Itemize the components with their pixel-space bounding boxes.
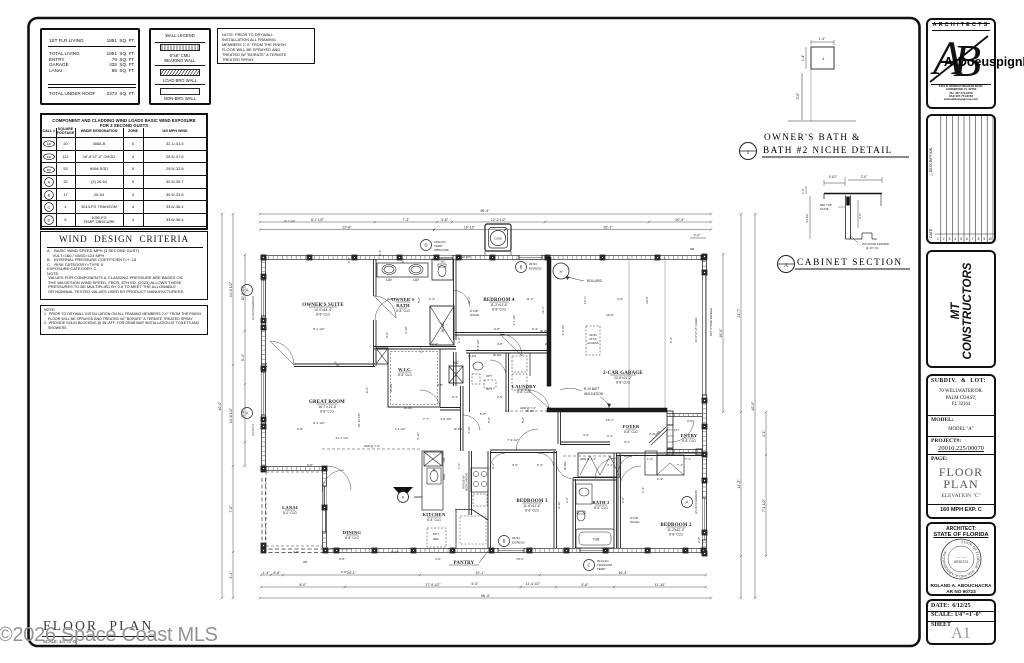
svg-text:8'-8" CLG: 8'-8" CLG xyxy=(682,439,696,443)
svg-text:5'-8": 5'-8" xyxy=(241,409,245,417)
svg-text:PANTRY: PANTRY xyxy=(454,561,475,566)
svg-text:8'-8" CLG: 8'-8" CLG xyxy=(624,430,638,434)
svg-text:7'-7": 7'-7" xyxy=(423,417,429,421)
svg-text:C: C xyxy=(587,563,590,568)
svg-text:10'-0 1/2": 10'-0 1/2" xyxy=(241,285,245,301)
svg-text:12'-1": 12'-1" xyxy=(541,306,545,314)
svg-text:8'-8" CLG: 8'-8" CLG xyxy=(316,313,330,317)
svg-text:21'-7 1/2": 21'-7 1/2" xyxy=(335,436,348,440)
svg-text:16'-4": 16'-4" xyxy=(618,571,628,575)
svg-text:96'-4": 96'-4" xyxy=(480,209,490,213)
svg-text:FOYER: FOYER xyxy=(622,424,640,429)
svg-text:10'-1": 10'-1" xyxy=(475,571,485,575)
svg-text:8'-8" CLG: 8'-8" CLG xyxy=(525,509,539,513)
svg-text:DINING: DINING xyxy=(343,530,362,535)
svg-text:A: A xyxy=(246,411,249,416)
svg-text:1'-4": 1'-4" xyxy=(801,54,805,62)
svg-text:1'-3": 1'-3" xyxy=(657,477,663,481)
svg-text:10'-1": 10'-1" xyxy=(516,557,524,561)
svg-text:D: D xyxy=(47,217,50,222)
svg-text:3'-6": 3'-6" xyxy=(385,332,389,338)
svg-text:4'-8": 4'-8" xyxy=(497,342,503,346)
svg-text:7: 7 xyxy=(972,237,974,241)
svg-text:2'-8": 2'-8" xyxy=(621,497,625,503)
svg-text:LAV: LAV xyxy=(386,278,393,282)
svg-text:3'-1 1/2": 3'-1 1/2" xyxy=(512,315,516,326)
svg-text:NICHE: NICHE xyxy=(470,313,479,317)
svg-text:5'-3": 5'-3" xyxy=(521,417,525,423)
svg-text:(2) 26-54 EGRESS: (2) 26-54 EGRESS xyxy=(694,490,698,514)
svg-text:4'-10": 4'-10" xyxy=(416,432,420,440)
svg-text:5'-8": 5'-8" xyxy=(487,417,491,423)
svg-text:36"x60": 36"x60" xyxy=(441,322,445,333)
svg-text:8'-1 1/2": 8'-1 1/2" xyxy=(313,421,324,425)
svg-text:5 1/2": 5 1/2" xyxy=(829,175,837,179)
svg-text:8'-8" CLG: 8'-8" CLG xyxy=(492,308,506,312)
svg-text:4'-1": 4'-1" xyxy=(762,429,766,437)
svg-text:WC: WC xyxy=(441,260,447,264)
svg-text:3'-10": 3'-10" xyxy=(404,326,408,334)
svg-text:1'-4": 1'-4" xyxy=(262,571,270,575)
svg-text:8'-8" CLG: 8'-8" CLG xyxy=(396,309,410,313)
svg-text:2'-0": 2'-0" xyxy=(694,234,702,238)
svg-text:B: B xyxy=(520,265,523,270)
svg-text:2'-4": 2'-4" xyxy=(429,297,435,301)
svg-text:HB: HB xyxy=(303,560,307,564)
svg-text:2'-8": 2'-8" xyxy=(347,257,351,263)
svg-text:ED: ED xyxy=(47,155,52,159)
svg-text:4'-8": 4'-8" xyxy=(494,327,500,331)
svg-text:28'-1": 28'-1" xyxy=(603,225,613,229)
svg-text:20'-9": 20'-9" xyxy=(606,313,614,317)
svg-text:OPT: OPT xyxy=(433,532,439,536)
svg-text:11'-10": 11'-10" xyxy=(655,583,667,587)
svg-text:ACCESS: ACCESS xyxy=(587,341,599,345)
svg-text:3'-1": 3'-1" xyxy=(607,463,613,467)
svg-text:16'-0"x7'-0" OHGD: 16'-0"x7'-0" OHGD xyxy=(694,317,698,343)
svg-text:16'-1": 16'-1" xyxy=(606,418,614,422)
svg-text:90-154: 90-154 xyxy=(563,461,567,470)
svg-text:12'-1": 12'-1" xyxy=(467,296,471,304)
svg-text:16'-0": 16'-0" xyxy=(645,296,649,304)
svg-text:TUB: TUB xyxy=(593,538,601,542)
svg-text:40'-0": 40'-0" xyxy=(218,401,222,411)
svg-text:2'-6": 2'-6" xyxy=(497,395,503,399)
svg-text:11'-4 1/2": 11'-4 1/2" xyxy=(526,582,542,586)
svg-text:7'-9 1/2": 7'-9 1/2" xyxy=(507,438,518,442)
svg-text:EGRESS: EGRESS xyxy=(529,267,542,271)
svg-text:1'-4": 1'-4" xyxy=(819,37,827,41)
svg-text:A: A xyxy=(47,179,50,184)
svg-text:W.I.C.: W.I.C. xyxy=(398,367,412,372)
svg-text:7'-4 1/2": 7'-4 1/2" xyxy=(394,427,405,431)
svg-text:2'-4": 2'-4" xyxy=(669,337,673,343)
svg-text:STATE OF FLORIDA · ROLAND A. A: STATE OF FLORIDA · ROLAND A. ABOUCHACRA … xyxy=(942,540,980,578)
svg-text:MICRO ABOVE: MICRO ABOVE xyxy=(465,473,469,491)
svg-text:11'-2"x11'-6": 11'-2"x11'-6" xyxy=(490,303,507,307)
svg-text:4'-4": 4'-4" xyxy=(432,342,438,346)
svg-text:2'-0": 2'-0" xyxy=(697,537,701,543)
svg-text:6'-8": 6'-8" xyxy=(307,463,313,467)
svg-text:8: 8 xyxy=(978,237,980,241)
svg-text:OPT: OPT xyxy=(486,374,492,378)
svg-text:10: 10 xyxy=(988,237,992,241)
svg-text:BOLLARD: BOLLARD xyxy=(587,279,603,283)
svg-text:1'-4": 1'-4" xyxy=(229,571,233,579)
svg-text:21'-7": 21'-7" xyxy=(737,308,741,318)
svg-text:20'-9": 20'-9" xyxy=(675,218,685,222)
svg-text:90-154: 90-154 xyxy=(468,354,477,358)
svg-text:3'-6": 3'-6" xyxy=(796,92,800,100)
svg-text:(2) 26-54: (2) 26-54 xyxy=(251,424,255,436)
svg-text:B: B xyxy=(503,539,506,544)
svg-text:2'-0": 2'-0" xyxy=(861,175,869,179)
svg-text:2'-8": 2'-8" xyxy=(297,427,303,431)
svg-text:KITCHEN: KITCHEN xyxy=(422,512,446,517)
svg-text:17'-9 1/2": 17'-9 1/2" xyxy=(425,583,441,587)
svg-text:11'-2"x12'-0": 11'-2"x12'-0" xyxy=(667,528,685,532)
svg-text:4'-0": 4'-0" xyxy=(435,557,441,561)
svg-text:2'-4": 2'-4" xyxy=(545,342,551,346)
svg-text:BATH: BATH xyxy=(396,303,410,308)
svg-text:SINK: SINK xyxy=(442,474,446,481)
svg-text:6'-2": 6'-2" xyxy=(365,387,369,393)
svg-text:B: B xyxy=(47,192,50,197)
svg-text:5'-8": 5'-8" xyxy=(480,412,486,416)
svg-text:2'-2": 2'-2" xyxy=(565,497,569,503)
svg-text:W: W xyxy=(560,270,563,274)
svg-text:COND: COND xyxy=(494,237,502,241)
svg-text:8'-8" CLG: 8'-8" CLG xyxy=(669,533,683,537)
svg-text:96'-4": 96'-4" xyxy=(481,594,491,598)
svg-text:1: 1 xyxy=(937,237,939,241)
svg-text:5'-3": 5'-3" xyxy=(537,463,543,467)
svg-text:14'-8 1/2": 14'-8 1/2" xyxy=(229,407,233,423)
svg-text:14'-0"x14'-4": 14'-0"x14'-4" xyxy=(314,308,332,312)
svg-text:M.T.: M.T. xyxy=(674,428,680,432)
svg-text:DW: DW xyxy=(442,457,446,462)
svg-text:8'-4": 8'-4" xyxy=(401,257,405,263)
svg-text:5'-0": 5'-0" xyxy=(417,297,421,303)
svg-text:5'-4": 5'-4" xyxy=(241,353,245,361)
svg-text:7'-1 1/2": 7'-1 1/2" xyxy=(762,498,766,512)
svg-text:40'-0": 40'-0" xyxy=(751,401,755,411)
svg-text:8'-8" CLG: 8'-8" CLG xyxy=(517,390,531,394)
svg-text:A: A xyxy=(686,500,689,505)
svg-text:R-19 BATT: R-19 BATT xyxy=(584,387,600,391)
svg-text:OWNER'S: OWNER'S xyxy=(391,297,414,302)
svg-text:OBSCURE: OBSCURE xyxy=(434,248,449,252)
svg-text:4'-6": 4'-6" xyxy=(617,297,623,301)
svg-text:9: 9 xyxy=(983,237,985,241)
svg-text:1'-0": 1'-0" xyxy=(801,188,805,194)
svg-text:5: 5 xyxy=(960,237,962,241)
svg-text:ED: ED xyxy=(47,142,52,146)
svg-text:7'-0": 7'-0" xyxy=(229,505,233,513)
svg-text:4'-10": 4'-10" xyxy=(467,426,471,434)
svg-text:8'-0": 8'-0" xyxy=(299,583,307,587)
svg-text:LANAI: LANAI xyxy=(282,505,298,510)
svg-text:CABINET SECTION: CABINET SECTION xyxy=(797,258,903,268)
svg-text:8'-10": 8'-10" xyxy=(391,550,399,554)
svg-text:A: A xyxy=(246,288,249,293)
svg-text:2'-4": 2'-4" xyxy=(532,327,538,331)
svg-text:34 1/2": 34 1/2" xyxy=(805,213,809,222)
svg-text:2: 2 xyxy=(943,237,945,241)
svg-text:A/C: A/C xyxy=(453,361,459,365)
svg-text:8'-7 1/2": 8'-7 1/2" xyxy=(311,218,325,222)
svg-text:90-154: 90-154 xyxy=(404,406,413,410)
svg-text:5'-8": 5'-8" xyxy=(581,583,589,587)
svg-text:BATH #2 NICHE DETAIL: BATH #2 NICHE DETAIL xyxy=(763,146,893,156)
svg-text:INSULATION: INSULATION xyxy=(584,392,604,396)
svg-text:HDR @ 7'-4": HDR @ 7'-4" xyxy=(580,457,596,461)
svg-text:3'-1": 3'-1" xyxy=(491,463,495,469)
svg-text:-4: -4 xyxy=(822,57,825,61)
svg-text:8'-0" CLG: 8'-0" CLG xyxy=(283,511,297,515)
svg-text:8'-8" CLG: 8'-8" CLG xyxy=(320,410,334,414)
svg-text:HDR @ 7'-4": HDR @ 7'-4" xyxy=(364,444,380,448)
svg-text:8'-8" CLG: 8'-8" CLG xyxy=(594,506,608,510)
svg-text:10'-10": 10'-10" xyxy=(461,255,470,259)
svg-text:12'-2 1/2": 12'-2 1/2" xyxy=(491,218,507,222)
svg-text:23'-8": 23'-8" xyxy=(342,225,352,229)
svg-text:8'-8" CLG: 8'-8" CLG xyxy=(616,381,630,385)
svg-text:14'-0 1/2": 14'-0 1/2" xyxy=(229,281,233,297)
svg-text:BATH 2: BATH 2 xyxy=(592,500,610,505)
svg-text:4'-1": 4'-1" xyxy=(607,434,613,438)
svg-text:90-154: 90-154 xyxy=(389,383,393,392)
svg-text:C: C xyxy=(47,205,50,210)
svg-text:3'-6": 3'-6" xyxy=(441,218,449,222)
svg-text:6'-8": 6'-8" xyxy=(341,570,347,574)
svg-text:4'-1": 4'-1" xyxy=(624,440,630,444)
svg-text:4: 4 xyxy=(954,237,956,241)
svg-text:6'-8": 6'-8" xyxy=(273,571,281,575)
svg-text:8'-1 1/2": 8'-1 1/2" xyxy=(313,327,324,331)
svg-text:1'-2": 1'-2" xyxy=(457,337,461,343)
svg-text:16'-0": 16'-0" xyxy=(719,328,723,338)
svg-text:18'-10 1/2": 18'-10 1/2" xyxy=(357,413,361,427)
svg-text:2'-8 1/2": 2'-8 1/2" xyxy=(561,325,565,336)
svg-text:8'-4": 8'-4" xyxy=(378,250,382,256)
svg-text:LAV: LAV xyxy=(413,278,420,282)
svg-text:5'-0": 5'-0" xyxy=(471,582,479,586)
svg-text:HB: HB xyxy=(690,247,694,251)
svg-text:3'-10": 3'-10" xyxy=(557,501,561,509)
svg-text:14'-3": 14'-3" xyxy=(737,479,741,489)
svg-text:8'-8" CLG: 8'-8" CLG xyxy=(345,536,359,540)
svg-text:3'-3": 3'-3" xyxy=(649,432,655,436)
svg-text:REF: REF xyxy=(433,537,439,541)
svg-text:(2) 26-54 EGRESS: (2) 26-54 EGRESS xyxy=(251,296,255,320)
svg-text:3'-0": 3'-0" xyxy=(858,213,862,219)
svg-text:7'-1": 7'-1" xyxy=(677,463,683,467)
svg-text:LAUNDRY: LAUNDRY xyxy=(512,384,537,389)
svg-text:16'-7 x 21'-8: 16'-7 x 21'-8 xyxy=(318,405,336,409)
svg-text:3'-6 1/2": 3'-6 1/2" xyxy=(440,417,451,421)
svg-text:D: D xyxy=(424,243,427,248)
svg-text:2'-8 1/2": 2'-8 1/2" xyxy=(476,339,480,350)
svg-text:OPT: OPT xyxy=(486,387,492,391)
svg-text:— · —: — · — xyxy=(956,555,966,559)
svg-text:9'-6": 9'-6" xyxy=(437,383,443,387)
svg-text:ED: ED xyxy=(47,168,52,172)
svg-text:26-54: 26-54 xyxy=(529,262,537,266)
svg-text:26-54: 26-54 xyxy=(512,536,520,540)
svg-text:AR93723: AR93723 xyxy=(954,560,968,564)
svg-text:11'-2": 11'-2" xyxy=(526,297,533,301)
svg-text:EGRESS: EGRESS xyxy=(512,541,525,545)
svg-text:OPT STONE VENEER: OPT STONE VENEER xyxy=(709,308,713,336)
svg-text:11'-6"x11'-6": 11'-6"x11'-6" xyxy=(523,504,540,508)
svg-text:2'-4": 2'-4" xyxy=(419,347,423,353)
svg-text:4'-8": 4'-8" xyxy=(687,419,693,423)
svg-text:10'-1": 10'-1" xyxy=(583,296,587,304)
svg-text:1'-6": 1'-6" xyxy=(647,457,653,461)
svg-text:7'-3": 7'-3" xyxy=(402,218,410,222)
svg-text:8'-8" CLG: 8'-8" CLG xyxy=(398,373,412,377)
svg-text:20'-8"x21'-2": 20'-8"x21'-2" xyxy=(614,376,632,380)
svg-text:4'-8": 4'-8" xyxy=(293,550,299,554)
svg-text:5'-4": 5'-4" xyxy=(452,395,458,399)
svg-text:6: 6 xyxy=(966,237,968,241)
svg-text:90-154: 90-154 xyxy=(540,329,549,333)
svg-text:7'-1": 7'-1" xyxy=(685,457,691,461)
svg-text:ENTRY: ENTRY xyxy=(681,433,698,438)
svg-text:PLATE: PLATE xyxy=(820,207,829,211)
svg-text:24'-1": 24'-1" xyxy=(347,571,357,575)
svg-text:6'-8": 6'-8" xyxy=(339,557,345,561)
svg-text:8'-7 1/2": 8'-7 1/2" xyxy=(285,219,296,223)
svg-text:3: 3 xyxy=(949,237,951,241)
svg-text:7'-6": 7'-6" xyxy=(457,463,461,469)
svg-text:4'-0": 4'-0" xyxy=(583,433,589,437)
svg-text:HDR @ 7'-4": HDR @ 7'-4" xyxy=(520,406,536,410)
svg-text:1'-3": 1'-3" xyxy=(641,487,645,493)
svg-text:TEMP: TEMP xyxy=(597,567,605,571)
svg-text:90-154: 90-154 xyxy=(454,427,463,431)
svg-text:@ 16" OC: @ 16" OC xyxy=(866,246,879,250)
svg-text:NICHE: NICHE xyxy=(630,520,639,524)
svg-text:8'-8" CLG: 8'-8" CLG xyxy=(427,518,441,522)
svg-text:10'-10": 10'-10" xyxy=(464,225,476,229)
svg-text:OWNER'S BATH &: OWNER'S BATH & xyxy=(764,133,861,143)
svg-text:90-154: 90-154 xyxy=(493,353,502,357)
svg-text:3'-6": 3'-6" xyxy=(512,463,518,467)
